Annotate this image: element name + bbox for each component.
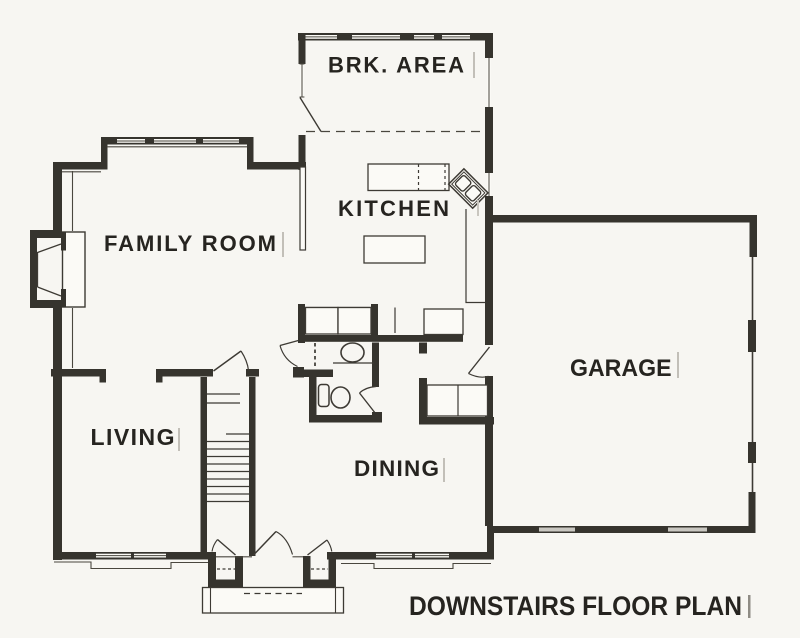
svg-text:GARAGE: GARAGE (570, 355, 672, 382)
svg-text:BRK. AREA: BRK. AREA (328, 53, 464, 78)
svg-text:LIVING: LIVING (91, 424, 175, 450)
svg-text:DINING: DINING (354, 456, 439, 481)
svg-text:DOWNSTAIRS FLOOR PLAN: DOWNSTAIRS FLOOR PLAN (409, 591, 742, 621)
svg-text:FAMILY ROOM: FAMILY ROOM (104, 231, 276, 256)
svg-text:KITCHEN: KITCHEN (338, 196, 449, 221)
